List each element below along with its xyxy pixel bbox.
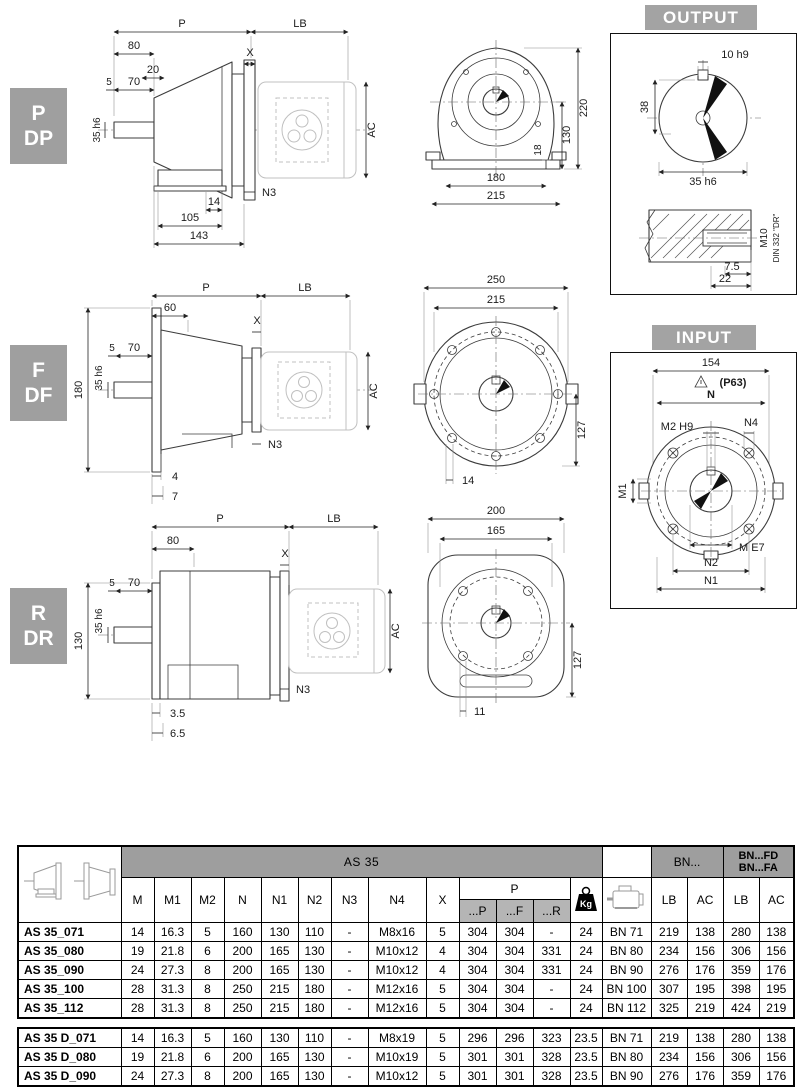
cell-n: 160 [224,923,261,942]
dim-label: 20 [147,64,159,76]
table-row: AS 35_100 28 31.3 8 250 215 180 - M12x16… [18,980,794,999]
dim-label: 127 [572,651,584,669]
tag-line: P [31,101,45,126]
cell-bn-lb: 219 [651,923,687,942]
p-group-header: P [459,878,570,900]
cell-m: 28 [121,999,154,1019]
cell-m2: 8 [191,980,224,999]
cell-bnfd-lb: 280 [723,923,759,942]
dim-label: AC [390,623,402,638]
rdr-drawing: P LB 80 5 70 X 35 h6 130 AC N3 3.5 6.5 [72,505,602,755]
cell-f: 304 [496,923,533,942]
tag-line: DR [23,626,53,651]
weight-icon: Kg [574,886,598,912]
cell-p: 304 [459,999,496,1019]
cell-r: 328 [533,1067,570,1087]
dim-label: 35 h6 [94,608,105,633]
dim-label: 14 [208,196,220,208]
cell-kg: 24 [570,942,602,961]
cell-n1: 165 [261,1048,298,1067]
dim-label: 60 [164,302,176,314]
cell-bn-ac: 156 [687,1048,723,1067]
output-panel-title: OUTPUT [645,5,757,30]
cell-n2: 110 [298,1028,331,1048]
col-header-m: M [121,878,154,923]
cell-bnfd-ac: 195 [759,980,794,999]
cell-bn-ac: 219 [687,999,723,1019]
cell-motor: BN 100 [602,980,651,999]
cell-n3: - [331,1048,368,1067]
cell-bnfd-ac: 156 [759,942,794,961]
cell-bnfd-lb: 280 [723,1028,759,1048]
col-header-dotp: ...P [459,900,496,923]
input-detail-drawing: 154 (P63) N M2 H9 [611,353,795,605]
cell-x: 4 [426,942,459,961]
dim-label: 80 [128,40,140,52]
cell-m2: 6 [191,1048,224,1067]
cell-kg: 24 [570,999,602,1019]
table-row: AS 35 D_080 19 21.8 6 200 165 130 - M10x… [18,1048,794,1067]
col-header-m1: M1 [154,878,191,923]
cell-m1: 21.8 [154,1048,191,1067]
cell-p: 296 [459,1028,496,1048]
table-title: AS 35 [121,846,602,878]
cell-n1: 130 [261,1028,298,1048]
cell-p: 301 [459,1048,496,1067]
dim-label: 130 [561,126,573,144]
dim-label: N [707,389,715,401]
cell-f: 296 [496,1028,533,1048]
cell-m1: 16.3 [154,1028,191,1048]
gearbox-variant-icons [22,853,118,913]
cell-n: 200 [224,1067,261,1087]
col-header-n4: N4 [368,878,426,923]
dim-label: 143 [190,230,208,242]
row-name: AS 35_090 [18,961,121,980]
dim-label: 180 [487,172,505,184]
cell-kg: 24 [570,961,602,980]
dim-label: M10 [759,228,770,248]
row-name: AS 35_080 [18,942,121,961]
cell-n1: 165 [261,961,298,980]
dim-label: 22 [719,273,731,285]
cell-x: 5 [426,980,459,999]
dimension-table: AS 35 BN... BN...FD BN...FA M M1 M2 N N1… [17,845,795,1019]
cell-motor: BN 90 [602,1067,651,1087]
motor-icon [605,884,649,914]
cell-m1: 27.3 [154,1067,191,1087]
cell-n4: M8x19 [368,1028,426,1048]
dim-label: DIN 332 "DR" [772,213,781,262]
col-header-ac: AC [687,878,723,923]
dim-label: LB [327,513,340,525]
cell-bn-ac: 138 [687,1028,723,1048]
cell-n3: - [331,923,368,942]
col-header-dotr: ...R [533,900,570,923]
cell-x: 5 [426,1028,459,1048]
input-panel-title: INPUT [652,325,756,350]
cell-bnfd-lb: 424 [723,999,759,1019]
cell-f: 301 [496,1048,533,1067]
col-header-lb: LB [723,878,759,923]
cell-bn-lb: 307 [651,980,687,999]
col-header-lb: LB [651,878,687,923]
cell-m1: 16.3 [154,923,191,942]
cell-bn-lb: 276 [651,1067,687,1087]
tag-line: F [32,358,45,383]
cell-n4: M12x16 [368,980,426,999]
fdf-drawing: P LB 60 5 70 X 35 h6 180 AC N3 4 7 [72,272,602,522]
dim-label: 220 [578,99,590,117]
dim-label: 18 [533,144,544,156]
cell-m2: 8 [191,961,224,980]
dim-label: 5 [109,343,115,354]
cell-n3: - [331,1028,368,1048]
cell-bn-ac: 176 [687,1067,723,1087]
cell-n4: M10x12 [368,1067,426,1087]
cell-m1: 31.3 [154,999,191,1019]
bnfd-line: BN...FD [724,850,794,862]
dim-label: N3 [268,439,282,451]
dim-label: P [202,282,209,294]
table-row: AS 35_080 19 21.8 6 200 165 130 - M10x12… [18,942,794,961]
cell-m: 14 [121,1028,154,1048]
cell-n: 200 [224,942,261,961]
bnfd-group-header: BN...FD BN...FA [723,846,794,878]
cell-m2: 6 [191,942,224,961]
cell-m2: 5 [191,1028,224,1048]
cell-n2: 110 [298,923,331,942]
dim-label: 70 [128,76,140,88]
cell-x: 5 [426,923,459,942]
dim-label: 3.5 [170,708,185,720]
cell-p: 304 [459,961,496,980]
col-header-n1: N1 [261,878,298,923]
cell-m: 24 [121,961,154,980]
kg-label: Kg [580,899,592,909]
dim-label: N4 [744,417,758,429]
cell-motor: BN 71 [602,923,651,942]
cell-bnfd-ac: 138 [759,1028,794,1048]
dim-label: 35 h6 [689,176,717,188]
cell-motor: BN 80 [602,1048,651,1067]
cell-n: 200 [224,961,261,980]
cell-n: 250 [224,980,261,999]
dim-label: 10 h9 [721,49,749,61]
cell-f: 304 [496,980,533,999]
bnfd-line: BN...FA [724,862,794,874]
cell-n4: M8x16 [368,923,426,942]
cell-n1: 165 [261,1067,298,1087]
col-header-n3: N3 [331,878,368,923]
cell-p: 304 [459,980,496,999]
dim-label: 200 [487,505,505,517]
cell-bn-lb: 325 [651,999,687,1019]
dim-label: 180 [73,381,85,399]
dim-label: 7 [172,491,178,503]
cell-m2: 8 [191,999,224,1019]
cell-n4: M10x12 [368,942,426,961]
cell-motor: BN 71 [602,1028,651,1048]
cell-n3: - [331,961,368,980]
variant-tag-fdf: F DF [10,345,67,421]
dim-label: LB [293,18,306,30]
cell-n4: M10x12 [368,961,426,980]
dim-label: 250 [487,274,505,286]
cell-kg: 24 [570,980,602,999]
row-name: AS 35 D_071 [18,1028,121,1048]
cell-p: 301 [459,1067,496,1087]
variant-tag-rdr: R DR [10,588,67,664]
cell-m: 19 [121,942,154,961]
cell-r: 331 [533,942,570,961]
cell-motor: BN 80 [602,942,651,961]
cell-bn-ac: 176 [687,961,723,980]
cell-f: 301 [496,1067,533,1087]
cell-bn-lb: 276 [651,961,687,980]
cell-n3: - [331,1067,368,1087]
col-header-x: X [426,878,459,923]
cell-m: 14 [121,923,154,942]
cell-n2: 180 [298,999,331,1019]
motor-column-header [602,878,651,923]
input-panel: 154 (P63) N M2 H9 [610,352,797,609]
dim-label: 4 [172,471,178,483]
cell-n: 200 [224,1048,261,1067]
cell-n2: 130 [298,1048,331,1067]
bn-group-header: BN... [651,846,723,878]
tag-line: DP [24,126,53,151]
row-name: AS 35_112 [18,999,121,1019]
dim-label: 35 h6 [94,365,105,390]
cell-x: 5 [426,999,459,1019]
table-row: AS 35_071 14 16.3 5 160 130 110 - M8x16 … [18,923,794,942]
cell-bnfd-ac: 176 [759,961,794,980]
cell-bn-ac: 156 [687,942,723,961]
row-name: AS 35_100 [18,980,121,999]
cell-n2: 130 [298,942,331,961]
table-row: AS 35_112 28 31.3 8 250 215 180 - M12x16… [18,999,794,1019]
cell-bn-lb: 234 [651,1048,687,1067]
cell-m1: 31.3 [154,980,191,999]
cell-m: 19 [121,1048,154,1067]
cell-r: - [533,923,570,942]
dim-label: (P63) [720,377,747,389]
cell-n4: M12x16 [368,999,426,1019]
dim-label: 6.5 [170,728,185,740]
cell-kg: 23.5 [570,1067,602,1087]
col-header-n: N [224,878,261,923]
cell-m2: 5 [191,923,224,942]
dim-label: N3 [296,684,310,696]
dim-label: 70 [128,577,140,589]
dim-label: 70 [128,342,140,354]
cell-bnfd-lb: 359 [723,961,759,980]
gearbox-icons-cell [18,846,121,923]
tag-line: R [31,601,46,626]
dim-label: N3 [262,187,276,199]
cell-n1: 165 [261,942,298,961]
cell-x: 5 [426,1048,459,1067]
cell-bn-lb: 234 [651,942,687,961]
cell-n2: 180 [298,980,331,999]
row-name: AS 35 D_090 [18,1067,121,1087]
dim-label: N1 [704,575,718,587]
dim-label: 5 [109,578,115,589]
weight-column-header: Kg [570,878,602,923]
dim-label: 127 [576,421,588,439]
dim-label: LB [298,282,311,294]
dim-label: 80 [167,535,179,547]
dim-label: X [246,47,254,59]
dim-label: 11 [474,706,485,718]
cell-n4: M10x19 [368,1048,426,1067]
cell-motor: BN 112 [602,999,651,1019]
cell-f: 304 [496,961,533,980]
cell-x: 4 [426,961,459,980]
cell-p: 304 [459,923,496,942]
motor-column-spacer [602,846,651,878]
dim-label: X [253,315,261,327]
cell-x: 5 [426,1067,459,1087]
dim-label: X [281,548,289,560]
table-row: AS 35_090 24 27.3 8 200 165 130 - M10x12… [18,961,794,980]
tag-line: DF [25,383,53,408]
output-panel: 10 h9 38 35 h6 7.5 22 M10 DIN 332 "DR" [610,33,797,295]
dim-label: 35 h6 [92,117,103,142]
cell-n: 250 [224,999,261,1019]
row-name: AS 35_071 [18,923,121,942]
cell-n1: 130 [261,923,298,942]
col-header-n2: N2 [298,878,331,923]
cell-bn-lb: 219 [651,1028,687,1048]
cell-r: 331 [533,961,570,980]
cell-m2: 8 [191,1067,224,1087]
cell-bn-ac: 138 [687,923,723,942]
dim-label: 215 [487,190,505,202]
cell-r: - [533,980,570,999]
dim-label: M1 [617,483,629,498]
cell-m1: 27.3 [154,961,191,980]
dim-label: 14 [462,475,474,487]
cell-r: - [533,999,570,1019]
variant-tag-pdp: P DP [10,88,67,164]
cell-kg: 24 [570,923,602,942]
cell-r: 328 [533,1048,570,1067]
dim-label: 215 [487,294,505,306]
dim-label: 105 [181,212,199,224]
cell-kg: 23.5 [570,1048,602,1067]
cell-motor: BN 90 [602,961,651,980]
cell-bnfd-lb: 359 [723,1067,759,1087]
row-name: AS 35 D_080 [18,1048,121,1067]
dimension-table-double-stage: AS 35 D_071 14 16.3 5 160 130 110 - M8x1… [17,1027,795,1087]
cell-r: 323 [533,1028,570,1048]
dim-label: 38 [639,101,651,113]
cell-m: 24 [121,1067,154,1087]
cell-bnfd-lb: 306 [723,942,759,961]
cell-n2: 130 [298,1067,331,1087]
cell-n1: 215 [261,980,298,999]
col-header-m2: M2 [191,878,224,923]
cell-bnfd-ac: 219 [759,999,794,1019]
cell-bnfd-ac: 138 [759,923,794,942]
col-header-ac: AC [759,878,794,923]
cell-f: 304 [496,942,533,961]
cell-n1: 215 [261,999,298,1019]
cell-bnfd-lb: 398 [723,980,759,999]
cell-n3: - [331,999,368,1019]
cell-n3: - [331,942,368,961]
dim-label: P [216,513,223,525]
cell-f: 304 [496,999,533,1019]
cell-kg: 23.5 [570,1028,602,1048]
dim-label: 165 [487,525,505,537]
output-detail-drawing: 10 h9 38 35 h6 7.5 22 M10 DIN 332 "DR" [611,34,795,291]
dim-label: 154 [702,357,720,369]
cell-n: 160 [224,1028,261,1048]
cell-bnfd-ac: 176 [759,1067,794,1087]
pdp-drawing: P LB 80 20 X 5 70 35 h6 AC N3 14 105 143 [72,2,602,266]
cell-m: 28 [121,980,154,999]
dim-label: M2 H9 [661,421,693,433]
dim-label: AC [366,122,378,137]
dim-label: N2 [704,557,718,569]
cell-bnfd-ac: 156 [759,1048,794,1067]
table-row: AS 35 D_090 24 27.3 8 200 165 130 - M10x… [18,1067,794,1087]
cell-bn-ac: 195 [687,980,723,999]
dim-label: AC [368,383,380,398]
dimension-table-section: AS 35 BN... BN...FD BN...FA M M1 M2 N N1… [17,845,793,1087]
cell-n2: 130 [298,961,331,980]
col-header-dotf: ...F [496,900,533,923]
cell-m1: 21.8 [154,942,191,961]
dim-label: M E7 [739,542,765,554]
dim-label: P [178,18,185,30]
dim-label: 7.5 [724,261,739,273]
cell-p: 304 [459,942,496,961]
datasheet-page: P DP F DF R DR P LB 80 [0,0,810,1092]
table-row: AS 35 D_071 14 16.3 5 160 130 110 - M8x1… [18,1028,794,1048]
cell-n3: - [331,980,368,999]
dim-label: 5 [106,77,112,88]
dim-label: 130 [73,632,85,650]
cell-bnfd-lb: 306 [723,1048,759,1067]
